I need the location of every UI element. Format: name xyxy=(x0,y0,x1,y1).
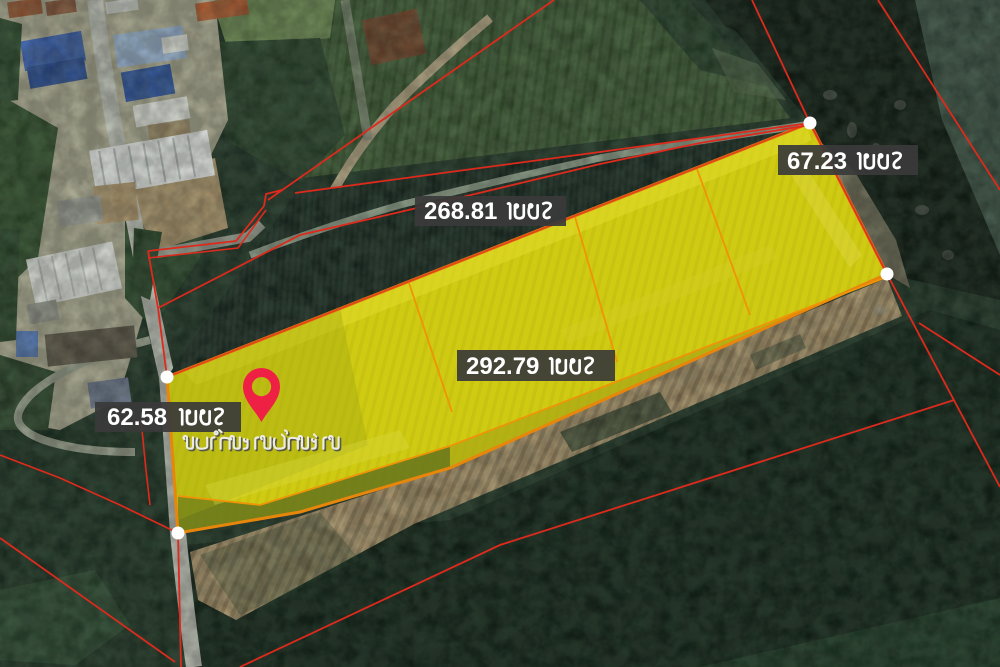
svg-text:268.81: 268.81 xyxy=(424,198,497,225)
svg-text:67.23: 67.23 xyxy=(787,148,847,175)
svg-text:62.58: 62.58 xyxy=(107,404,167,431)
svg-text:292.79: 292.79 xyxy=(466,353,539,380)
